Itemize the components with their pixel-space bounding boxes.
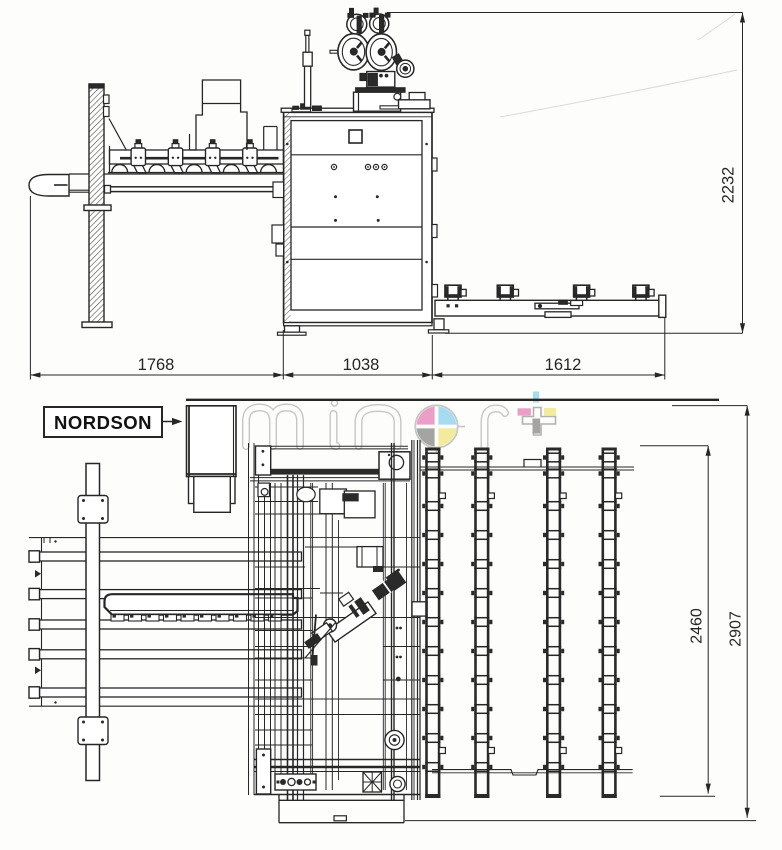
svg-text:1612: 1612: [545, 356, 582, 374]
svg-text:2460: 2460: [689, 608, 706, 644]
svg-text:1768: 1768: [138, 356, 175, 374]
svg-text:1038: 1038: [343, 356, 380, 374]
svg-text:2232: 2232: [720, 167, 738, 204]
svg-text:2907: 2907: [728, 611, 745, 647]
svg-text:NORDSON: NORDSON: [54, 412, 152, 433]
